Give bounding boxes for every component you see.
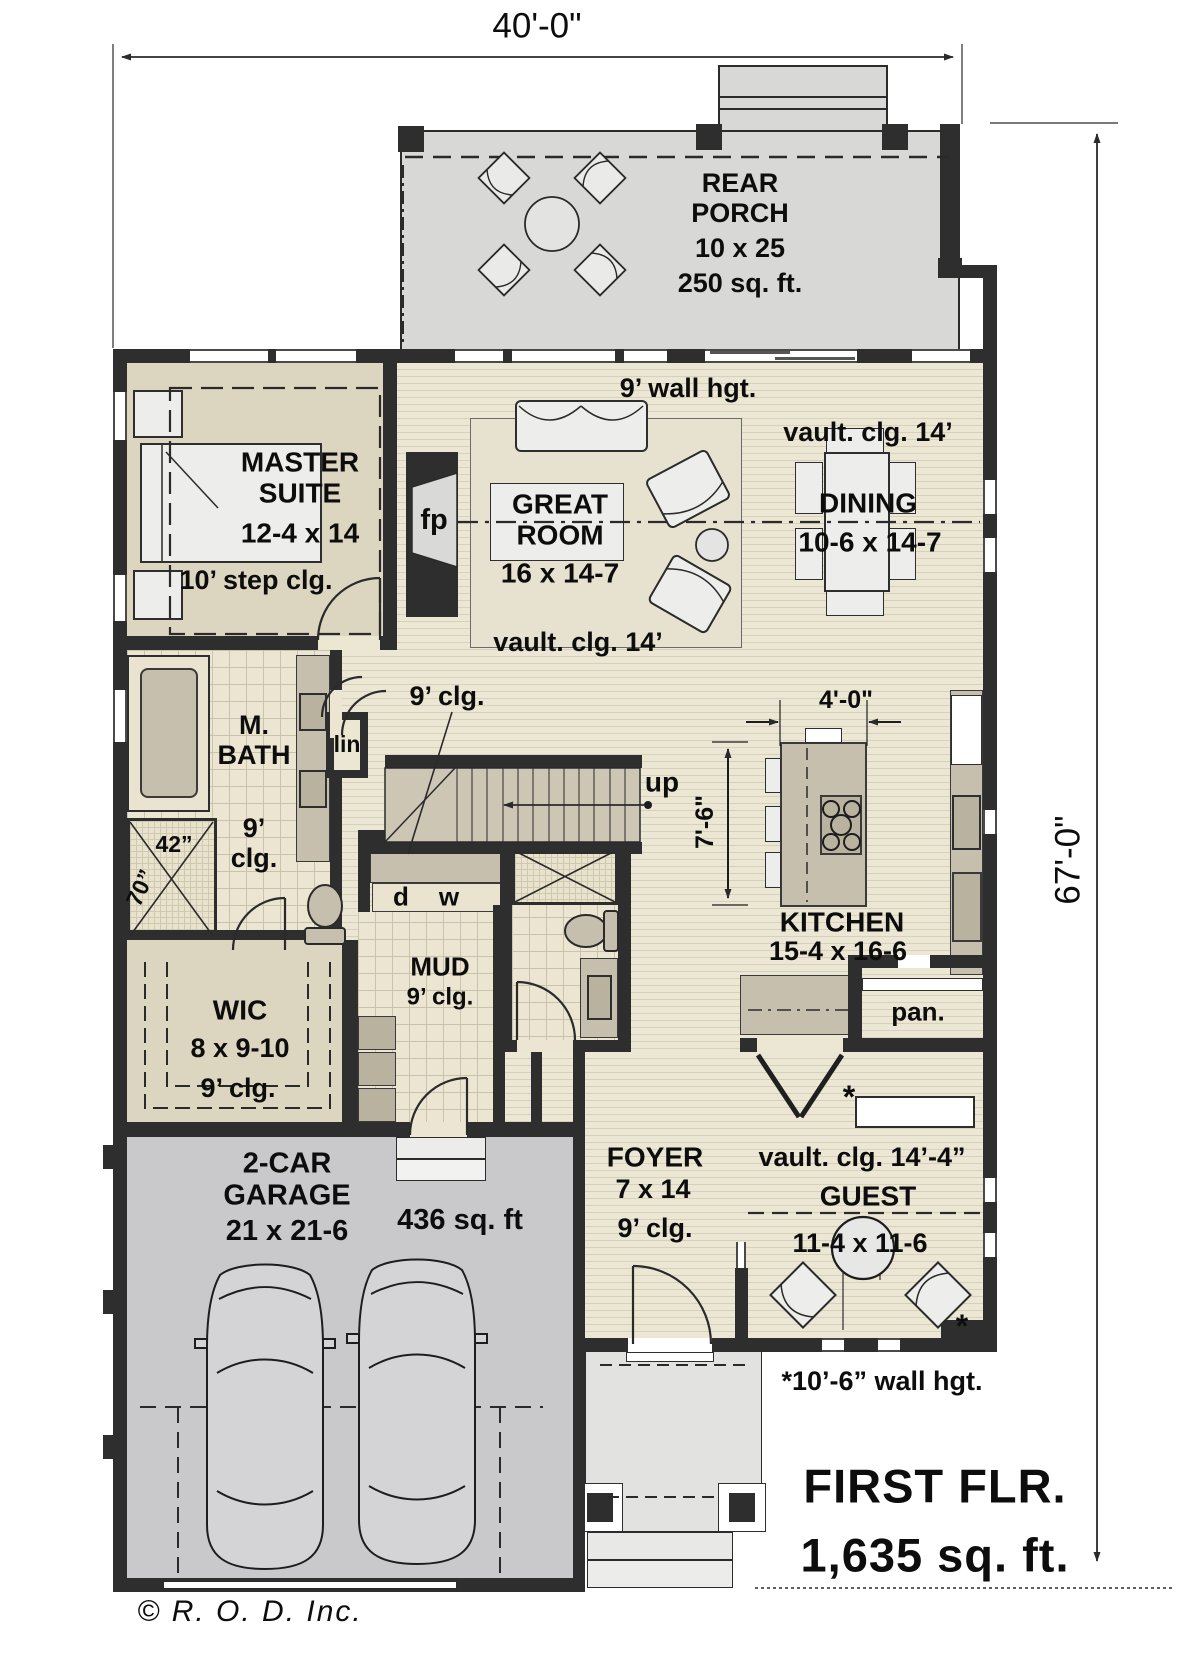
mud-locker bbox=[358, 1016, 396, 1050]
window-mullion bbox=[503, 349, 512, 363]
floor-title: FIRST FLR. bbox=[803, 1461, 1066, 1514]
window bbox=[822, 1338, 844, 1352]
wall-wic-top bbox=[113, 930, 345, 940]
wall-height-note: *10’-6” wall hgt. bbox=[781, 1366, 982, 1396]
island-width-label: 4'-0" bbox=[819, 686, 873, 714]
sliding-door-leaf bbox=[775, 357, 855, 360]
nightstand-top bbox=[133, 390, 183, 438]
great-room-wall-height: 9’ wall hgt. bbox=[620, 373, 757, 403]
front-step-2 bbox=[587, 1560, 733, 1588]
hallbath-door-opening bbox=[517, 1040, 573, 1052]
hall-bath-sink bbox=[587, 975, 612, 1020]
french-door-opening bbox=[757, 1038, 843, 1052]
mud-locker bbox=[358, 1088, 396, 1122]
master-bath-name: M. BATH bbox=[214, 710, 294, 770]
master-name: MASTER SUITE bbox=[210, 447, 390, 510]
porch-post-core bbox=[729, 1493, 755, 1522]
front-door-opening bbox=[628, 1338, 712, 1352]
foyer-guest-sidelight bbox=[736, 1242, 746, 1268]
wic-ceiling: 9’ clg. bbox=[200, 1073, 275, 1103]
wall-foyer-guest bbox=[735, 1268, 748, 1338]
island-hood bbox=[805, 728, 842, 743]
foyer-size: 7 x 14 bbox=[615, 1174, 690, 1204]
porch-post-core bbox=[587, 1493, 613, 1522]
rear-porch-post bbox=[696, 124, 722, 150]
kitchen-size: 15-4 x 16-6 bbox=[769, 936, 907, 966]
front-door-slab bbox=[626, 1352, 714, 1362]
rear-porch-name: REAR PORCH bbox=[653, 168, 828, 228]
porch-chimney-band bbox=[720, 96, 886, 110]
dryer-label: d bbox=[393, 882, 409, 911]
wall-right-stub bbox=[957, 265, 997, 278]
garage-area: 436 sq. ft bbox=[397, 1204, 523, 1236]
hall-shower bbox=[512, 848, 618, 905]
rear-porch-size: 10 x 25 bbox=[695, 233, 785, 263]
pilaster bbox=[103, 1435, 113, 1459]
garage-size: 21 x 21-6 bbox=[226, 1215, 349, 1247]
washer-label: w bbox=[439, 882, 459, 911]
linen-label: lin bbox=[334, 732, 361, 758]
vanity-sink bbox=[299, 693, 327, 731]
guest-note-asterisk: * bbox=[956, 1309, 968, 1345]
foyer-name: FOYER bbox=[607, 1141, 703, 1172]
kitchen-sink bbox=[952, 795, 981, 850]
stool bbox=[765, 852, 781, 888]
island-depth-label: 7'-6" bbox=[691, 795, 719, 849]
stool bbox=[765, 758, 781, 793]
washer-dryer bbox=[372, 883, 502, 912]
floor-area: 1,635 sq. ft. bbox=[801, 1530, 1070, 1583]
window bbox=[113, 392, 127, 440]
dining-size: 10-6 x 14-7 bbox=[798, 526, 941, 557]
window bbox=[983, 480, 997, 514]
window bbox=[983, 538, 997, 572]
garage-door bbox=[163, 1581, 457, 1589]
pantry-label: pan. bbox=[891, 997, 944, 1026]
mud-garage-door-opening bbox=[410, 1122, 467, 1137]
guest-size: 11-4 x 11-6 bbox=[792, 1228, 927, 1258]
wic-name: WIC bbox=[213, 994, 267, 1025]
wall-stairs-top bbox=[385, 755, 642, 768]
great-room-name: GREAT ROOM bbox=[480, 489, 640, 552]
master-size: 12-4 x 14 bbox=[241, 517, 359, 548]
refrigerator bbox=[951, 695, 982, 765]
wall-left bbox=[113, 349, 127, 1592]
kitchen-name: KITCHEN bbox=[780, 906, 904, 937]
tub bbox=[140, 668, 198, 798]
window bbox=[455, 349, 667, 363]
wall-laundry-left bbox=[358, 830, 370, 912]
window bbox=[276, 349, 356, 363]
rear-porch-post bbox=[398, 126, 424, 152]
front-step-1 bbox=[587, 1532, 733, 1560]
vanity-sink bbox=[299, 770, 327, 808]
nightstand-bottom bbox=[133, 570, 183, 620]
wall-garage-top bbox=[113, 1122, 585, 1137]
stool bbox=[765, 806, 781, 842]
dining-table bbox=[824, 452, 890, 592]
pilaster bbox=[103, 1290, 113, 1314]
dining-chair bbox=[826, 590, 884, 616]
guest-corner-block bbox=[941, 1320, 997, 1352]
foyer-ceiling: 9’ clg. bbox=[617, 1213, 692, 1243]
window bbox=[912, 349, 970, 363]
window bbox=[190, 349, 268, 363]
mud-name: MUD bbox=[410, 952, 469, 981]
wall-wic-right bbox=[342, 940, 358, 1122]
sofa bbox=[515, 400, 648, 452]
wall-hallbath-left bbox=[500, 842, 512, 1052]
vanity bbox=[296, 655, 330, 862]
window bbox=[983, 1178, 997, 1202]
rear-porch-floor bbox=[400, 130, 960, 350]
rear-porch-post bbox=[882, 124, 908, 150]
master-door-opening bbox=[318, 636, 380, 650]
window bbox=[113, 690, 127, 742]
great-room-ceiling: vault. clg. 14’ bbox=[493, 627, 663, 657]
great-room-size: 16 x 14-7 bbox=[501, 557, 619, 588]
stairs-up-label: up bbox=[645, 766, 679, 797]
window-mullion bbox=[615, 349, 624, 363]
kitchen-back-counter bbox=[740, 975, 862, 1035]
floor-plan: 40'-0" 67'-0" REAR PORCH 10 x 25 250 sq.… bbox=[0, 0, 1200, 1675]
garage-name: 2-CAR GARAGE bbox=[182, 1148, 392, 1213]
wic-size: 8 x 9-10 bbox=[190, 1033, 289, 1063]
window bbox=[983, 810, 997, 834]
wall-laundry-top bbox=[358, 830, 505, 842]
hall-ceiling: 9’ clg. bbox=[409, 681, 484, 711]
wall-garage-right bbox=[573, 1040, 585, 1578]
dim-width-label: 40'-0" bbox=[492, 6, 581, 45]
wall-entry-closet bbox=[531, 1052, 542, 1122]
range bbox=[952, 872, 982, 942]
wall-pantry-left bbox=[848, 955, 862, 1052]
guest-note-asterisk: * bbox=[843, 1080, 855, 1116]
garage-step bbox=[396, 1137, 486, 1159]
cooktop bbox=[820, 795, 862, 855]
guest-built-in bbox=[855, 1096, 975, 1128]
fireplace-label: fp bbox=[420, 504, 447, 536]
guest-ceiling: vault. clg. 14’-4” bbox=[758, 1142, 965, 1172]
garage-step bbox=[396, 1159, 486, 1181]
shower-width-label: 42” bbox=[155, 832, 192, 858]
rear-porch-area: 250 sq. ft. bbox=[678, 268, 803, 298]
window bbox=[983, 1233, 997, 1257]
sliding-door-leaf bbox=[710, 351, 790, 354]
guest-name: GUEST bbox=[820, 1180, 916, 1211]
dim-depth-label: 67'-0" bbox=[1048, 815, 1087, 904]
master-bath-ceiling: 9’ clg. bbox=[226, 813, 282, 873]
wall-hallbath-right bbox=[618, 842, 631, 1052]
master-ceiling: 10’ step clg. bbox=[179, 565, 332, 595]
mud-ceiling: 9’ clg. bbox=[407, 985, 474, 1012]
copyright: © R. O. D. Inc. bbox=[137, 1595, 362, 1629]
dining-name: DINING bbox=[819, 487, 917, 518]
window bbox=[113, 575, 127, 621]
mud-locker bbox=[358, 1052, 396, 1086]
dining-ceiling: vault. clg. 14’ bbox=[783, 417, 953, 447]
pantry-shelf bbox=[862, 978, 983, 991]
pilaster bbox=[103, 1145, 113, 1169]
rear-porch-wall bbox=[940, 124, 960, 276]
window bbox=[878, 1338, 900, 1352]
